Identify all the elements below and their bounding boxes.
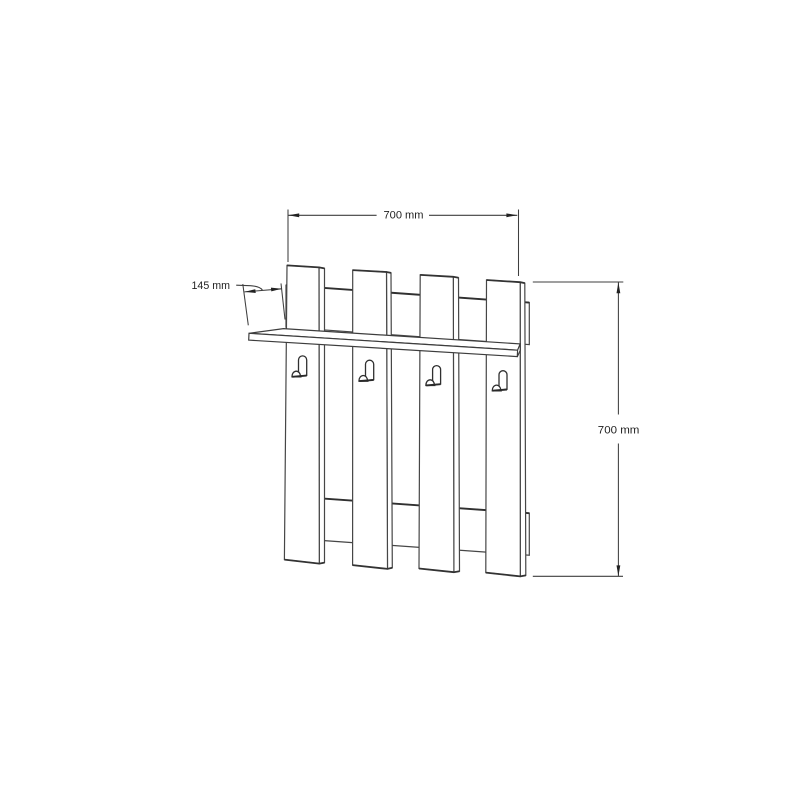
svg-text:145 mm: 145 mm (192, 280, 231, 292)
svg-text:700 mm: 700 mm (384, 209, 424, 221)
svg-text:700 mm: 700 mm (598, 424, 640, 436)
